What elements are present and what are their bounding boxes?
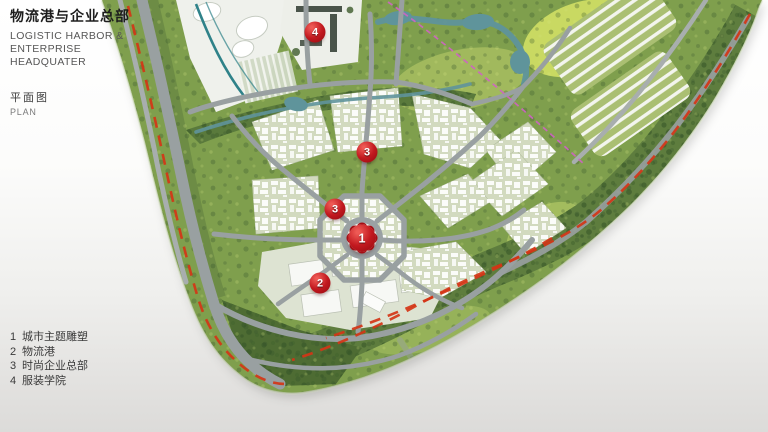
page-subtitle-line2: ENTERPRISE HEADQUATER	[10, 43, 160, 69]
legend-item-number: 2	[10, 345, 18, 360]
title-block: 物流港与企业总部 LOGISTIC HARBOR & ENTERPRISE HE…	[10, 6, 160, 117]
legend-item-number: 3	[10, 359, 18, 374]
legend-item-label: 物流港	[22, 346, 55, 358]
legend-item-2: 2物流港	[10, 345, 88, 360]
legend-item-3: 3时尚企业总部	[10, 359, 88, 374]
legend-item-number: 1	[10, 330, 18, 345]
legend-item-label: 城市主题雕塑	[22, 331, 88, 343]
plan-label-zh: 平面图	[10, 89, 160, 105]
legend: 1城市主题雕塑2物流港3时尚企业总部4服装学院	[10, 330, 88, 388]
legend-item-4: 4服装学院	[10, 374, 88, 389]
masterplan-board: 43312 物流港与企业总部 LOGISTIC HARBOR & ENTERPR…	[0, 0, 768, 432]
page-title: 物流港与企业总部	[10, 6, 160, 26]
central-roundabout	[341, 217, 383, 259]
legend-item-number: 4	[10, 374, 18, 389]
plan-label-en: PLAN	[10, 107, 160, 117]
legend-item-1: 1城市主题雕塑	[10, 330, 88, 345]
legend-item-label: 时尚企业总部	[22, 360, 88, 372]
legend-item-label: 服装学院	[22, 375, 66, 387]
page-subtitle-line1: LOGISTIC HARBOR &	[10, 30, 160, 43]
